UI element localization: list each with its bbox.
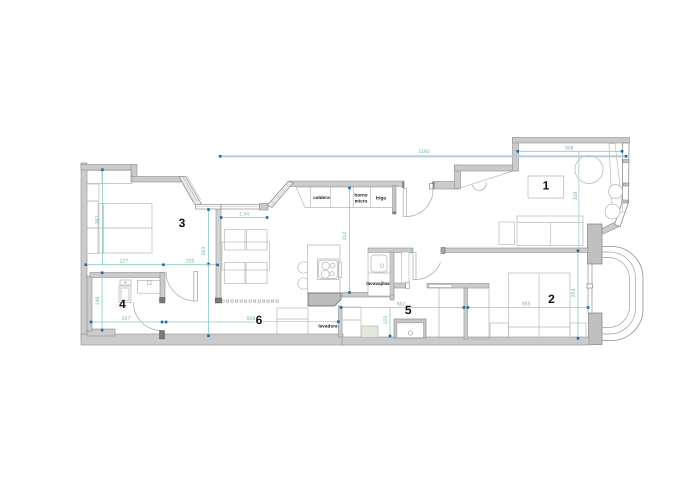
svg-text:508: 508 — [247, 316, 256, 322]
svg-text:1190: 1190 — [418, 149, 429, 155]
svg-text:5: 5 — [405, 303, 412, 317]
svg-text:263: 263 — [201, 247, 207, 256]
svg-text:355: 355 — [522, 302, 531, 308]
svg-text:122: 122 — [383, 316, 389, 325]
svg-text:6: 6 — [256, 313, 263, 327]
svg-text:308: 308 — [565, 146, 574, 152]
svg-text:2: 2 — [548, 292, 555, 306]
svg-text:micro: micro — [355, 199, 368, 204]
svg-text:1.34: 1.34 — [239, 212, 249, 218]
svg-text:309: 309 — [573, 192, 579, 201]
svg-text:312: 312 — [342, 232, 348, 241]
svg-text:4: 4 — [119, 297, 126, 311]
svg-text:horno: horno — [354, 193, 367, 198]
svg-text:297: 297 — [95, 216, 101, 225]
svg-text:155: 155 — [186, 259, 195, 265]
svg-text:lavadora: lavadora — [318, 324, 338, 329]
svg-text:lavavajilas: lavavajilas — [366, 281, 390, 286]
svg-text:caldera: caldera — [313, 195, 330, 200]
svg-text:207: 207 — [122, 316, 131, 322]
svg-text:1: 1 — [543, 179, 550, 193]
svg-text:254: 254 — [571, 289, 577, 298]
svg-text:148: 148 — [95, 297, 101, 306]
svg-text:227: 227 — [120, 259, 129, 265]
svg-text:3: 3 — [179, 216, 186, 230]
svg-text:frigo: frigo — [376, 196, 387, 201]
